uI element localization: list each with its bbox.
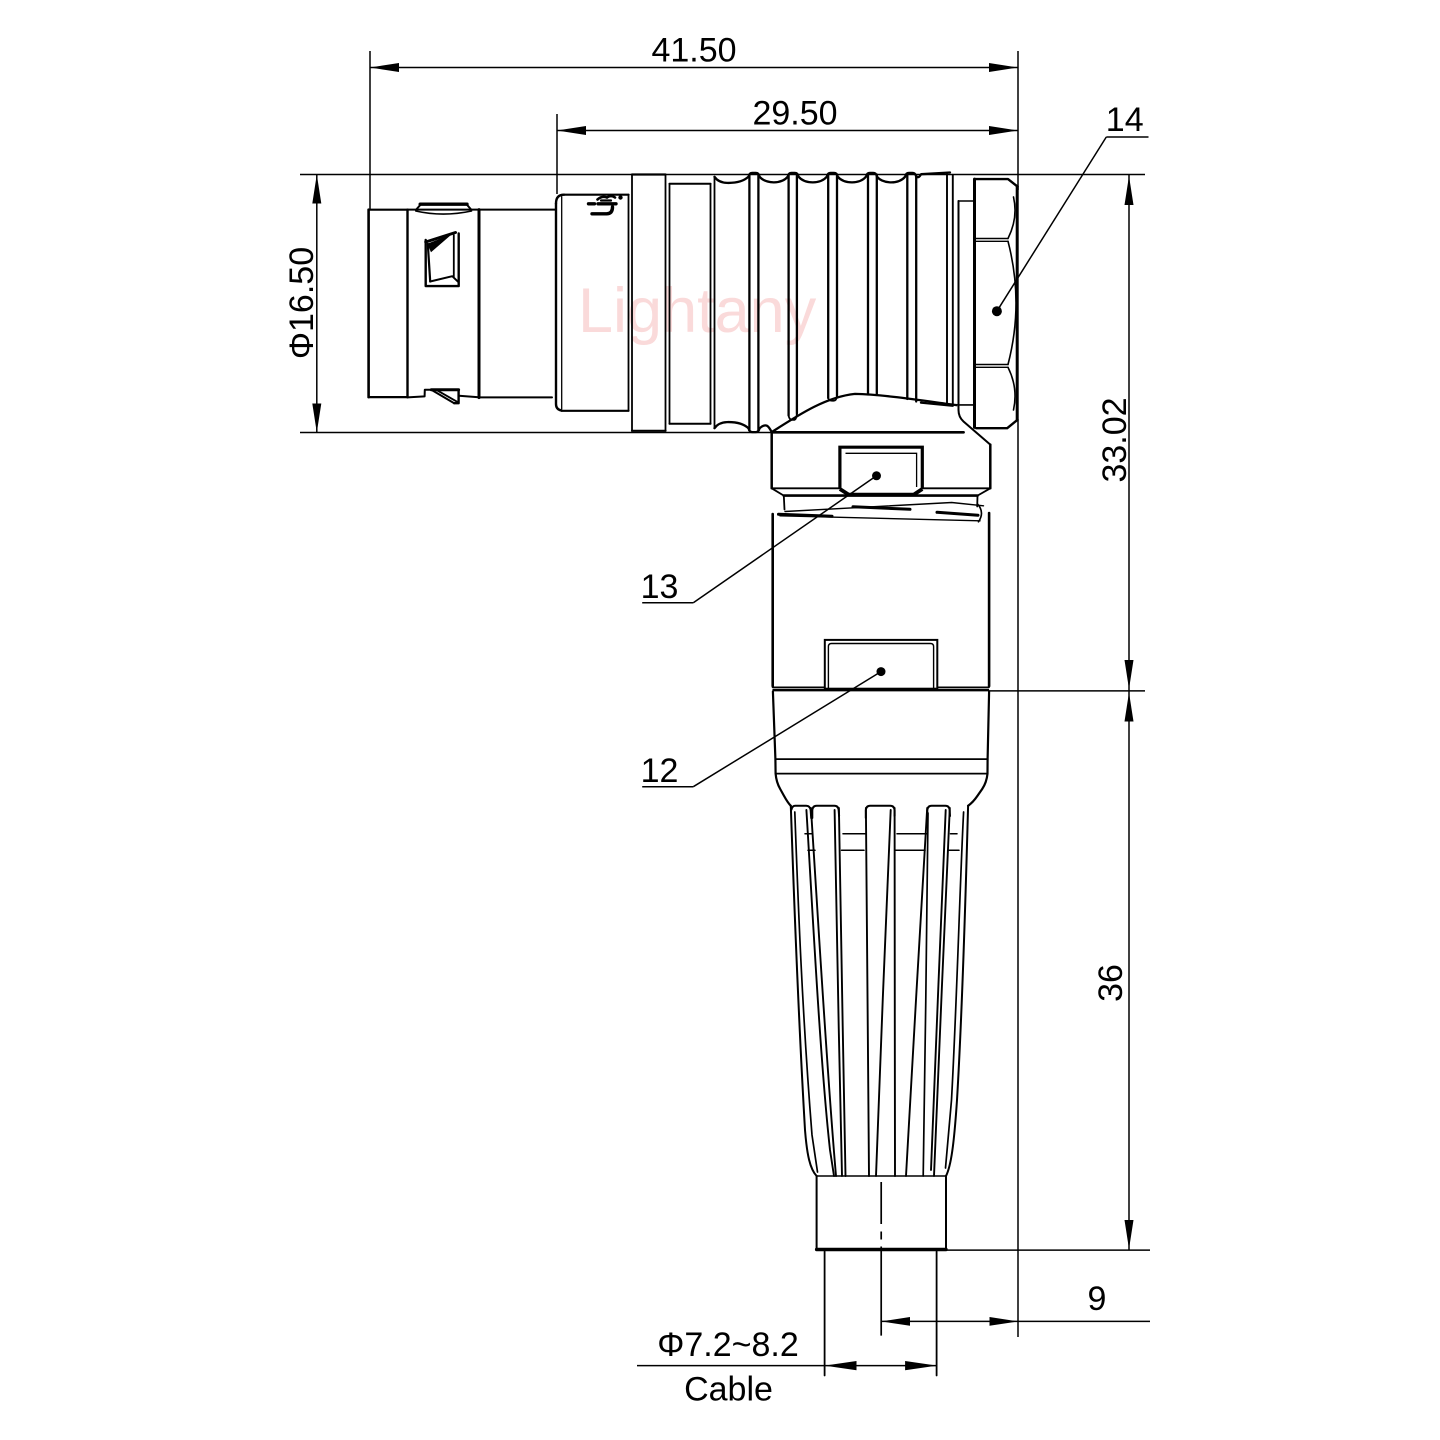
svg-text:Cable: Cable	[684, 1371, 773, 1409]
svg-text:Φ7.2~8.2: Φ7.2~8.2	[657, 1326, 799, 1364]
svg-text:36: 36	[1092, 964, 1130, 1002]
svg-text:41.50: 41.50	[651, 32, 736, 70]
svg-text:Φ16.50: Φ16.50	[283, 247, 321, 359]
svg-text:12: 12	[641, 752, 679, 790]
svg-text:9: 9	[1088, 1280, 1107, 1318]
svg-text:33.02: 33.02	[1096, 397, 1134, 482]
svg-text:Lightany: Lightany	[578, 276, 817, 346]
svg-text:13: 13	[641, 568, 679, 606]
svg-text:14: 14	[1106, 101, 1144, 139]
svg-text:29.50: 29.50	[752, 95, 837, 133]
